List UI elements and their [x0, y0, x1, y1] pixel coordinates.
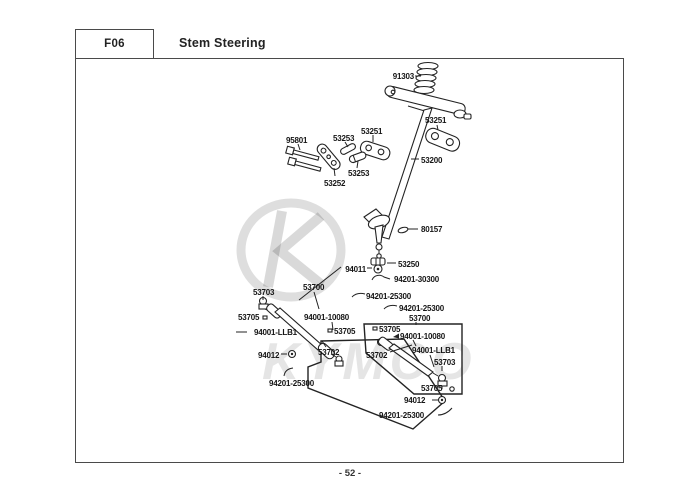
steering-stem-drawing — [286, 63, 471, 281]
part-label-53253-top: 53253 — [333, 134, 355, 143]
part-label-94012-right: 94012 — [404, 396, 426, 405]
part-label-53251-left: 53251 — [361, 127, 383, 136]
part-label-53705-right-2: 53705 — [421, 384, 443, 393]
section-code: F06 — [104, 38, 125, 50]
bolts-drawing — [286, 146, 322, 172]
part-label-94001-llb1-left: 94001-LLB1 — [254, 328, 298, 337]
page-title: Stem Steering — [179, 36, 266, 50]
part-label-91303: 91303 — [393, 72, 415, 81]
part-label-95801: 95801 — [286, 136, 308, 145]
part-label-94001-10080-left: 94001-10080 — [304, 313, 350, 322]
clamp-right-drawing — [424, 126, 462, 153]
part-label-94201-25300-1: 94201-25300 — [366, 292, 412, 301]
part-label-53700-right: 53700 — [409, 314, 431, 323]
spring-drawing — [414, 63, 438, 94]
part-label-53702-left: 53702 — [318, 348, 340, 357]
part-label-53253-bottom: 53253 — [348, 169, 370, 178]
part-label-53700-left: 53700 — [303, 283, 325, 292]
part-label-94011: 94011 — [345, 265, 367, 274]
section-code-box: F06 — [75, 29, 154, 59]
part-label-94201-30300: 94201-30300 — [394, 275, 440, 284]
part-label-53705-left-1: 53705 — [238, 313, 260, 322]
part-label-53705-right-1: 53705 — [379, 325, 401, 334]
part-label-53703-right: 53703 — [434, 358, 456, 367]
diagram-frame: KYMCO — [75, 58, 624, 463]
part-label-53200: 53200 — [421, 156, 443, 165]
parts-diagram: KYMCO — [76, 59, 623, 462]
part-label-94201-25300-left: 94201-25300 — [269, 379, 315, 388]
part-label-53252: 53252 — [324, 179, 346, 188]
part-label-80157: 80157 — [421, 225, 443, 234]
part-label-53702-right: 53702 — [366, 351, 388, 360]
page-number: - 52 - — [0, 468, 700, 479]
nut-washer-drawing — [371, 258, 390, 280]
part-label-53251-right: 53251 — [425, 116, 447, 125]
part-label-53703-left: 53703 — [253, 288, 275, 297]
part-label-94012-left: 94012 — [258, 351, 280, 360]
part-label-53250: 53250 — [398, 260, 420, 269]
part-label-94201-25300-right: 94201-25300 — [379, 411, 425, 420]
part-label-94201-25300-2: 94201-25300 — [399, 304, 445, 313]
clip-drawing — [398, 226, 409, 233]
pin-top-drawing — [340, 143, 357, 156]
part-label-53705-left-2: 53705 — [334, 327, 356, 336]
part-label-94001-10080-right: 94001-10080 — [400, 332, 446, 341]
parts-catalog-page: F06 Stem Steering KYMCO — [0, 0, 700, 495]
part-label-94001-llb1-right: 94001-LLB1 — [412, 346, 456, 355]
